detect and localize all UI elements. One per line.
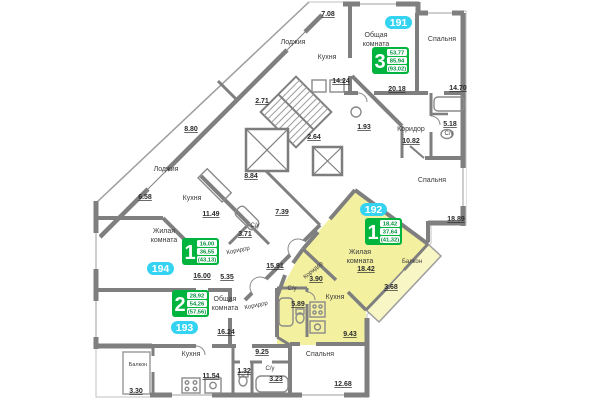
svg-text:2: 2	[174, 294, 185, 316]
elevator-shaft-1	[246, 129, 288, 171]
area-value: 11.49	[202, 211, 219, 218]
info-box-192: 1 18,42 37,64 (41,32)	[365, 218, 402, 245]
area-value: 12.68	[334, 381, 352, 388]
room-label: Жилая	[349, 249, 371, 256]
room-label: С/у	[445, 131, 454, 137]
area-value: 8.84	[244, 173, 258, 180]
svg-text:(41,32): (41,32)	[381, 237, 399, 243]
svg-text:18,42: 18,42	[383, 221, 398, 227]
area-value: 15.91	[266, 263, 284, 270]
svg-text:1: 1	[184, 242, 195, 264]
room-label: Спальня	[428, 36, 456, 43]
area-value: 9.43	[343, 331, 357, 338]
area-value: 16.00	[193, 273, 211, 280]
svg-text:54,26: 54,26	[190, 301, 205, 307]
room-label: Общая	[365, 31, 388, 39]
svg-text:(93,02): (93,02)	[388, 66, 406, 72]
svg-text:193: 193	[176, 322, 194, 334]
room-label: Спальня	[418, 177, 446, 184]
elevator-shaft-2	[313, 147, 342, 175]
area-value: 2.64	[307, 134, 321, 141]
area-value: 3.68	[384, 284, 398, 291]
svg-text:3: 3	[374, 51, 385, 73]
area-value: 5.35	[220, 274, 234, 281]
room-label: Лоджия	[154, 166, 179, 173]
svg-text:16,00: 16,00	[200, 241, 215, 247]
room-label: комната	[363, 41, 390, 48]
area-value: 8.80	[184, 126, 198, 133]
area-value: 7.39	[275, 209, 289, 216]
badge-194: 194	[147, 262, 174, 275]
badge-193: 193	[171, 321, 198, 334]
room-label: Коридор	[397, 126, 425, 133]
area-value: 5.18	[443, 121, 457, 128]
area-value: 3.90	[309, 276, 323, 283]
room-label: С/у	[288, 286, 297, 292]
svg-text:1: 1	[367, 222, 378, 244]
svg-text:192: 192	[365, 204, 383, 216]
svg-text:36,55: 36,55	[200, 249, 215, 255]
room-label: Кухня	[182, 351, 201, 358]
area-value: 18.42	[357, 266, 375, 273]
room-label: Жилая	[153, 228, 175, 235]
area-value: 14.24	[332, 78, 350, 85]
room-label: Общая	[214, 295, 237, 303]
area-value: 9.25	[255, 349, 269, 356]
area-value: 3.30	[129, 388, 143, 395]
floor-plan: Общая комната Спальня Кухня Лоджия Корид…	[0, 0, 600, 400]
area-value: 5.89	[291, 301, 305, 308]
info-box-191: 3 53,77 85,94 (93,02)	[372, 47, 409, 74]
svg-text:194: 194	[152, 263, 170, 275]
room-label: комната	[212, 305, 239, 312]
area-value: 6.58	[138, 194, 152, 201]
area-value: 1.93	[357, 124, 371, 131]
badge-191: 191	[385, 16, 412, 29]
room-label: комната	[347, 258, 374, 265]
svg-text:(57,56): (57,56)	[188, 309, 206, 315]
room-label: С/у	[266, 366, 275, 372]
room-label: Кухня	[326, 294, 345, 301]
room-label: С/у	[251, 223, 260, 229]
room-label: Балкон	[402, 259, 422, 265]
svg-text:28,92: 28,92	[190, 293, 205, 299]
area-value: 2.71	[255, 98, 269, 105]
floor-plan-drawing: Общая комната Спальня Кухня Лоджия Корид…	[0, 0, 600, 400]
room-label: Кухня	[183, 195, 202, 202]
area-value: 1.32	[237, 368, 251, 375]
area-value: 18.89	[447, 216, 465, 223]
area-value: 3.71	[238, 231, 252, 238]
area-value: 14.70	[449, 85, 467, 92]
area-value: 10.82	[402, 138, 420, 145]
room-label: Балкон	[129, 362, 147, 368]
info-box-193: 2 28,92 54,26 (57,56)	[172, 290, 209, 317]
svg-text:85,94: 85,94	[390, 58, 405, 64]
area-value: 16.24	[217, 329, 235, 336]
area-value: 20.18	[388, 86, 406, 93]
room-label: Спальня	[306, 351, 334, 358]
area-value: 11.54	[202, 373, 219, 380]
svg-text:53,77: 53,77	[390, 50, 405, 56]
room-label: комната	[151, 237, 178, 244]
badge-192: 192	[360, 203, 387, 216]
svg-text:(43,13): (43,13)	[198, 257, 216, 263]
svg-text:191: 191	[390, 17, 408, 29]
area-value: 3.23	[269, 376, 283, 383]
room-label: Лоджия	[281, 39, 306, 46]
area-value: 7.08	[321, 11, 335, 18]
room-label: Кухня	[318, 54, 337, 61]
svg-text:37,64: 37,64	[383, 229, 398, 235]
info-box-194: 1 16,00 36,55 (43,13)	[182, 238, 219, 265]
